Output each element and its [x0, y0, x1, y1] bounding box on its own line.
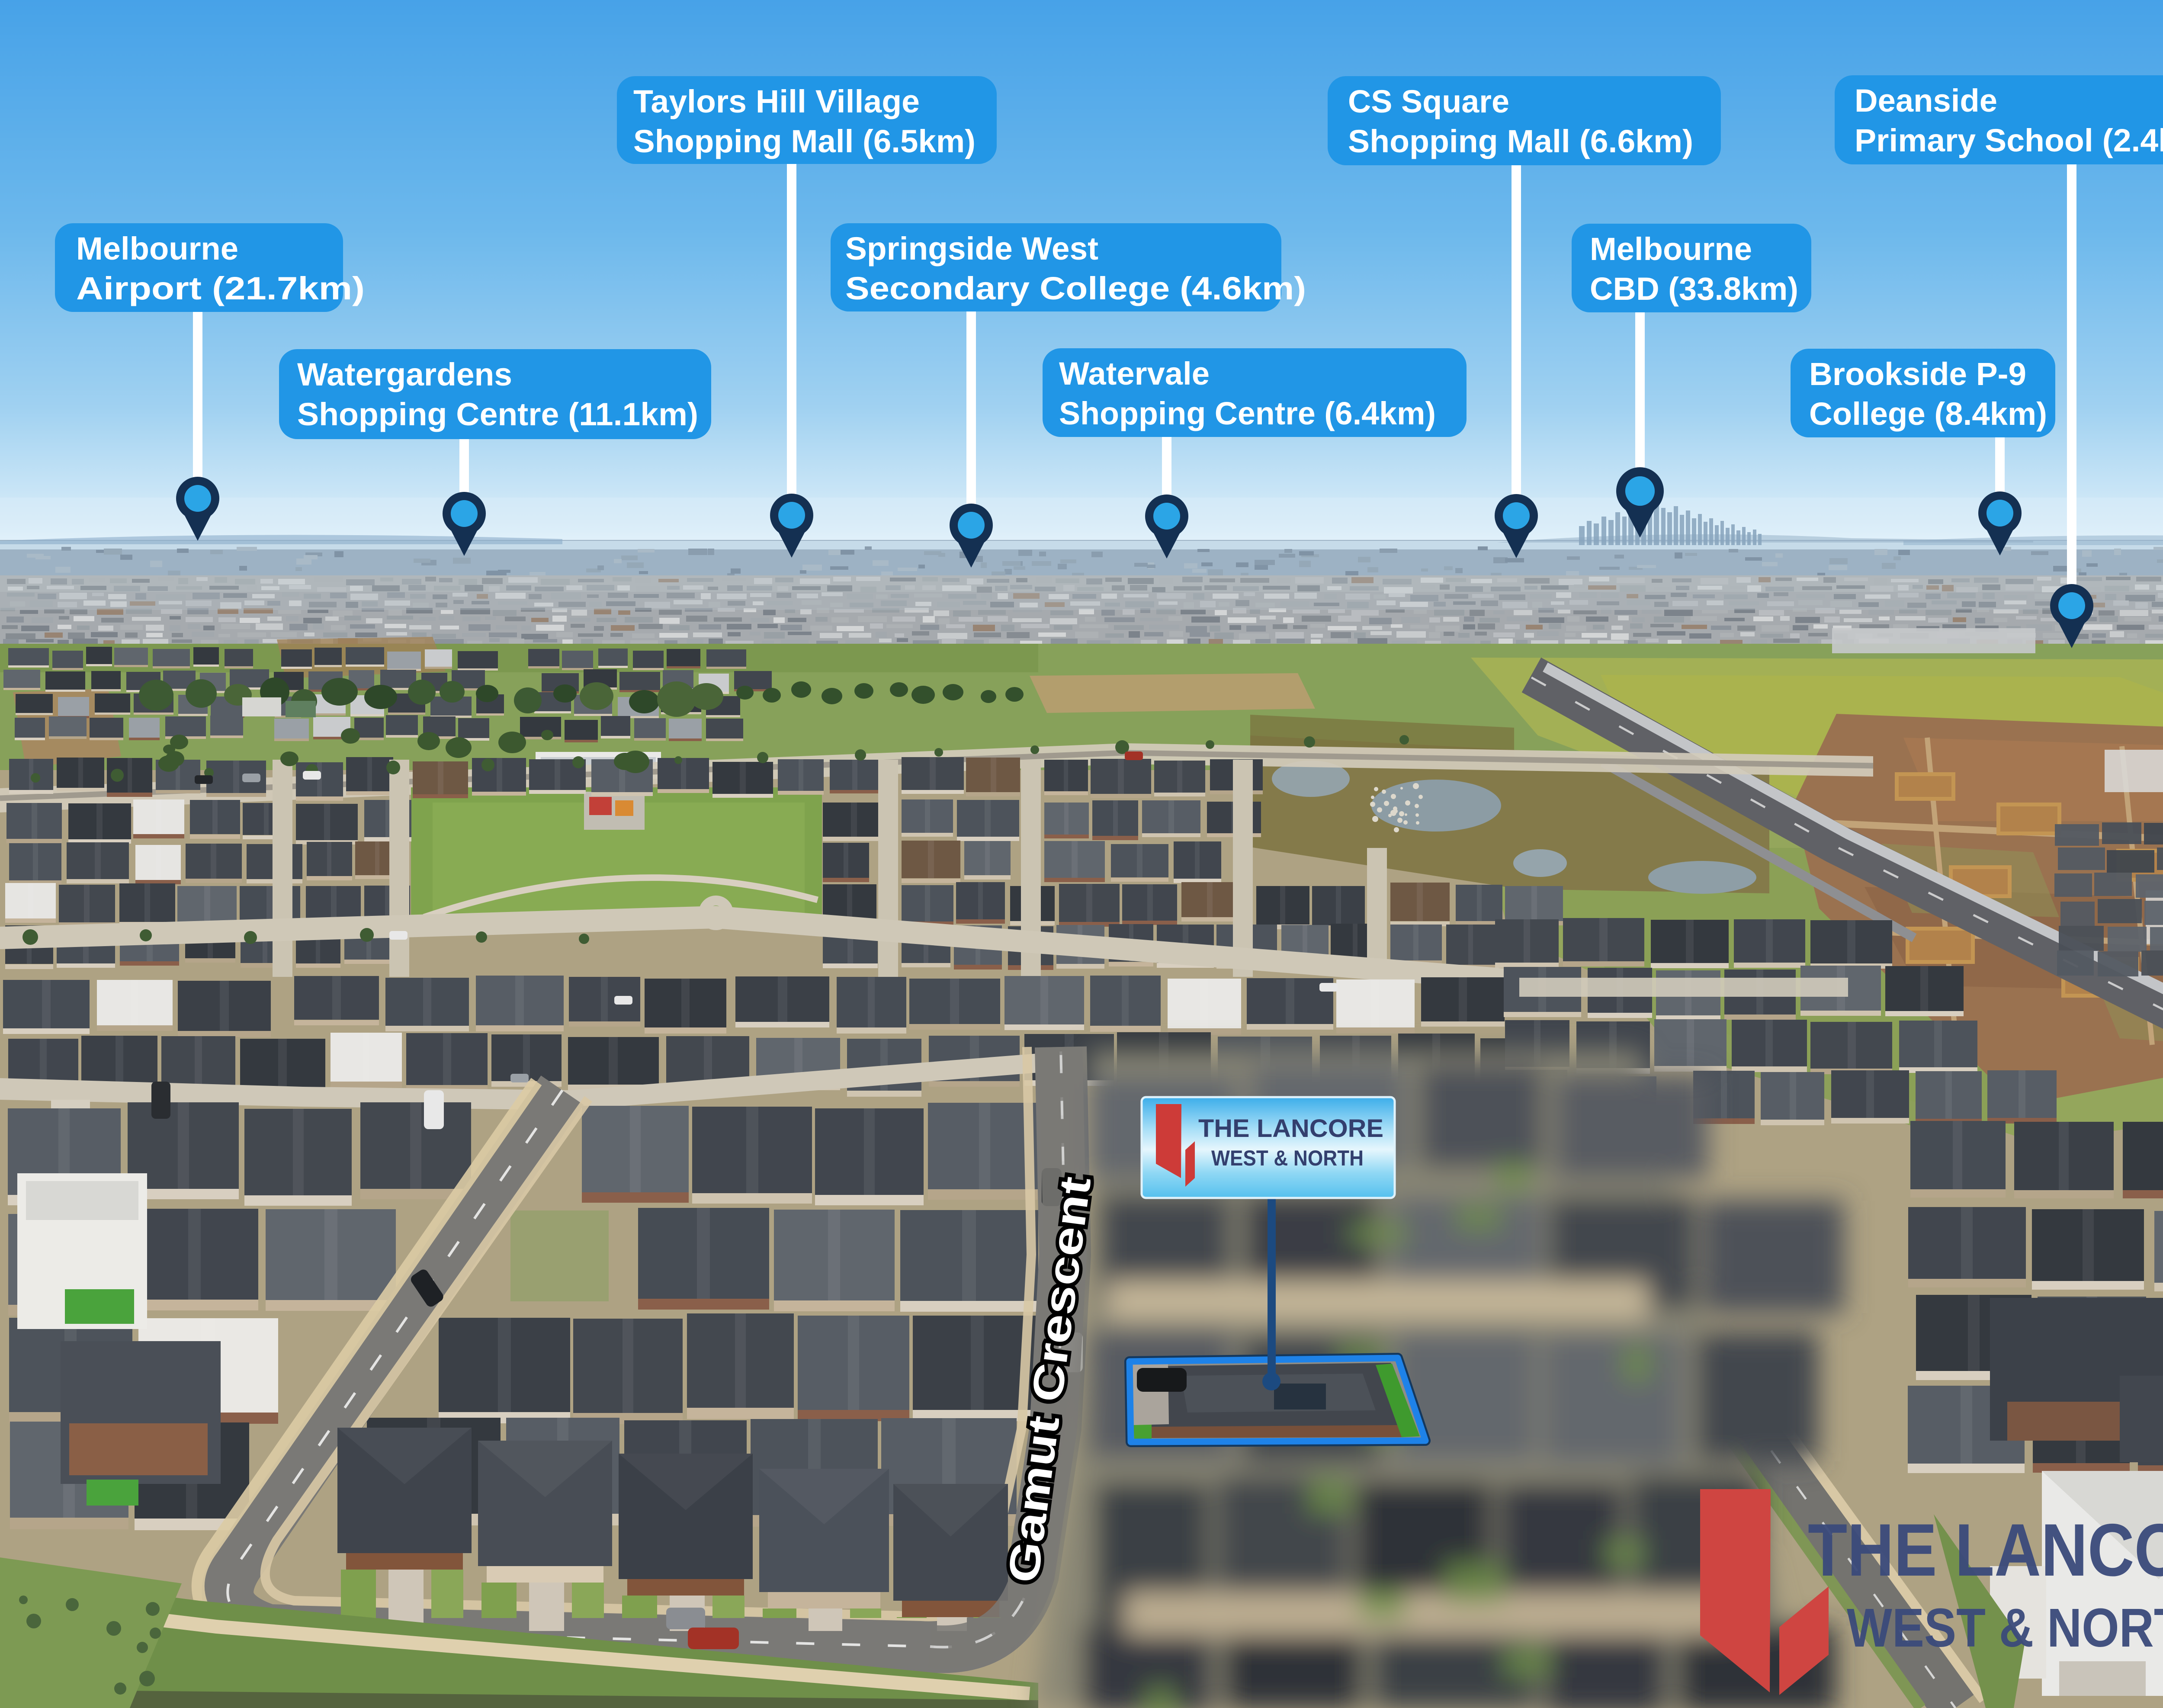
svg-text:Watergardens: Watergardens: [297, 356, 512, 392]
svg-text:Melbourne: Melbourne: [76, 231, 238, 266]
svg-text:Airport (21.7km): Airport (21.7km): [76, 270, 365, 306]
svg-text:Melbourne: Melbourne: [1590, 231, 1752, 267]
svg-text:Shopping Mall (6.6km): Shopping Mall (6.6km): [1348, 123, 1693, 159]
svg-text:CS Square: CS Square: [1348, 83, 1509, 119]
svg-text:WEST & NORTH: WEST & NORTH: [1847, 1597, 2163, 1658]
svg-text:College (8.4km): College (8.4km): [1809, 396, 2047, 432]
svg-text:CBD (33.8km): CBD (33.8km): [1590, 271, 1798, 307]
svg-text:Taylors Hill Village: Taylors Hill Village: [633, 83, 920, 119]
svg-text:Shopping Centre (11.1km): Shopping Centre (11.1km): [297, 396, 698, 432]
svg-text:Deanside: Deanside: [1855, 83, 1997, 119]
svg-text:Shopping Centre (6.4km): Shopping Centre (6.4km): [1059, 395, 1436, 431]
svg-text:WEST & NORTH: WEST & NORTH: [1211, 1146, 1364, 1170]
svg-text:Shopping Mall (6.5km): Shopping Mall (6.5km): [633, 123, 976, 159]
svg-text:Watervale: Watervale: [1059, 356, 1210, 392]
svg-text:THE LANCORE: THE LANCORE: [1198, 1114, 1383, 1143]
svg-text:Secondary College (4.6km): Secondary College (4.6km): [845, 270, 1306, 306]
svg-text:Brookside P-9: Brookside P-9: [1809, 356, 2026, 392]
svg-text:Primary School (2.4km): Primary School (2.4km): [1855, 122, 2163, 158]
svg-text:Springside West: Springside West: [845, 231, 1098, 266]
svg-text:THE LANCORE: THE LANCORE: [1808, 1509, 2163, 1592]
